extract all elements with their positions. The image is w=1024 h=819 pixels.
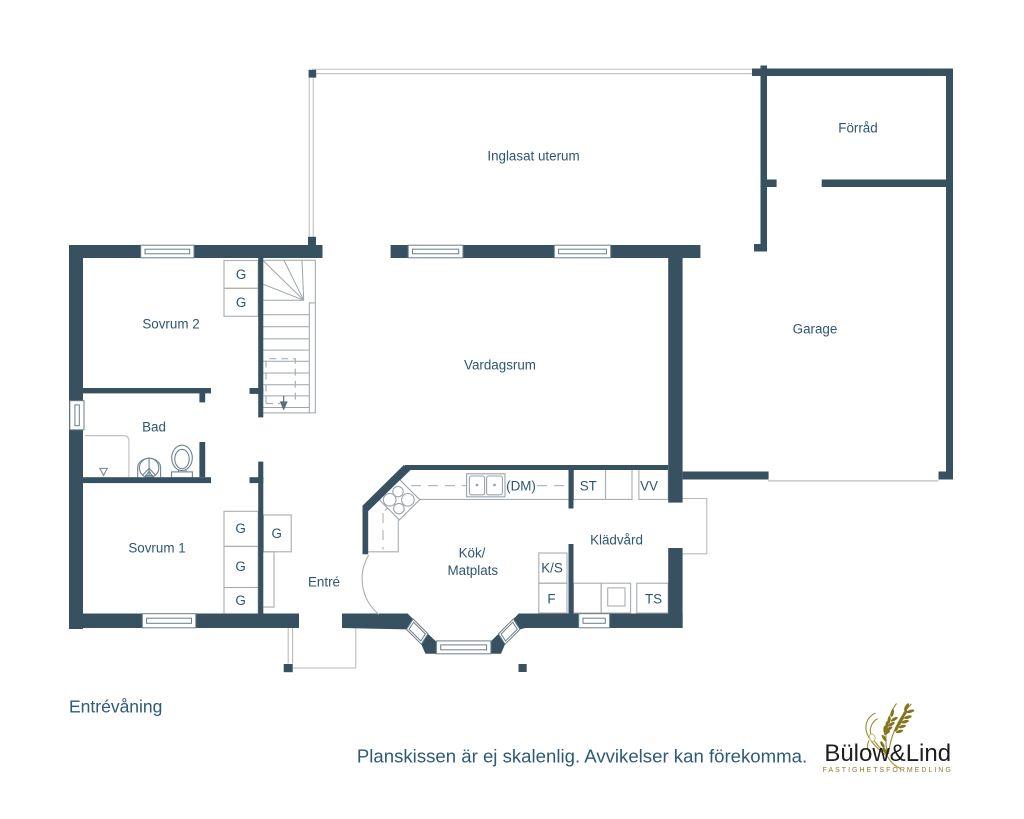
svg-text:G: G [235, 521, 245, 536]
svg-text:G: G [235, 559, 245, 574]
svg-text:F: F [547, 591, 555, 606]
svg-text:TS: TS [645, 591, 662, 606]
svg-text:G: G [235, 593, 245, 608]
svg-text:G: G [236, 267, 246, 282]
svg-text:VV: VV [640, 478, 658, 493]
svg-text:Kök/: Kök/ [459, 546, 486, 561]
svg-text:ST: ST [580, 478, 597, 493]
svg-text:Inglasat uterum: Inglasat uterum [487, 149, 579, 164]
svg-text:(DM): (DM) [506, 478, 536, 493]
svg-text:K/S: K/S [541, 561, 563, 576]
svg-text:Sovrum 1: Sovrum 1 [128, 541, 185, 556]
svg-text:Entrévåning: Entrévåning [69, 697, 162, 717]
svg-text:Klädvård: Klädvård [590, 533, 643, 548]
svg-text:Planskissen är ej skalenlig. A: Planskissen är ej skalenlig. Avvikelser … [357, 746, 807, 767]
svg-text:G: G [236, 295, 246, 310]
svg-text:Garage: Garage [793, 322, 838, 337]
svg-text:Bad: Bad [142, 420, 166, 435]
svg-text:Matplats: Matplats [447, 563, 498, 578]
svg-text:G: G [271, 526, 281, 541]
svg-text:Bülow&Lind: Bülow&Lind [824, 740, 951, 767]
svg-text:FASTIGHETSFÖRMEDLING: FASTIGHETSFÖRMEDLING [823, 766, 953, 774]
svg-text:Sovrum 2: Sovrum 2 [142, 317, 199, 332]
svg-text:Förråd: Förråd [838, 121, 877, 136]
svg-text:Entré: Entré [308, 575, 340, 590]
svg-text:Vardagsrum: Vardagsrum [464, 358, 536, 373]
